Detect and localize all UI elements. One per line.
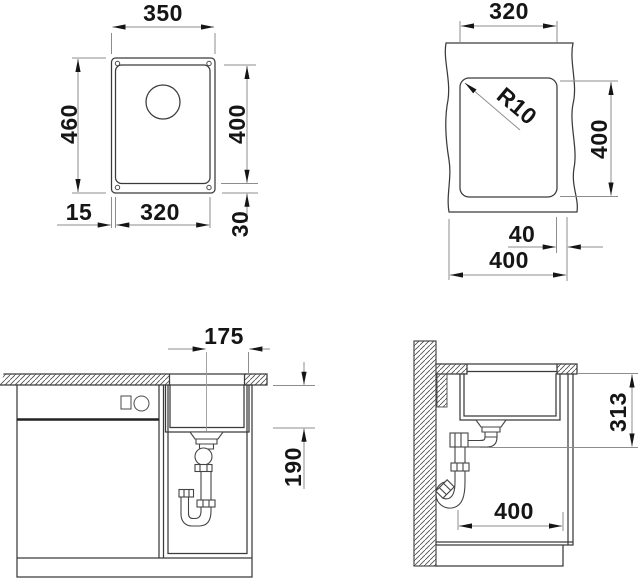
worktop-hatch-right	[245, 374, 267, 385]
dimension-drain-height: 313	[480, 374, 638, 448]
worktop-side-hatch-left	[436, 364, 467, 374]
dishwasher-dial	[134, 396, 149, 411]
dim-320-label: 320	[140, 199, 180, 225]
dimension-cutout-depth: 400	[560, 81, 618, 197]
sink-bowl-rim	[116, 65, 211, 184]
mounting-hole	[115, 185, 119, 189]
dim-40-label: 40	[509, 221, 536, 247]
wall-mounting-rail	[437, 374, 447, 407]
dimension-cabinet-width: 400	[449, 219, 566, 280]
dim-175-label: 175	[204, 323, 244, 349]
cutout-view: R10 320 400 40 400	[445, 0, 618, 281]
sink-bowl-front	[166, 385, 250, 432]
dim-320-cutout-label: 320	[489, 0, 529, 24]
top-view: 350 460 400 15 320 30	[56, 0, 258, 237]
wall-section	[414, 341, 436, 566]
dimension-center-offset: 175	[168, 323, 270, 374]
dishwasher-button	[121, 396, 131, 409]
cabinet-outline	[17, 385, 252, 577]
dim-460-label: 460	[56, 104, 82, 144]
dimension-bowl-depth: 400	[221, 65, 258, 184]
dim-400-cutout-label: 400	[586, 119, 612, 159]
trap-assembly-side	[436, 420, 506, 508]
dim-313-label: 313	[605, 392, 631, 432]
dimension-overall-depth: 460	[56, 58, 106, 193]
dim-15-label: 15	[66, 199, 93, 225]
front-view: 175 190	[0, 323, 315, 577]
mounting-hole	[207, 185, 211, 189]
drain-hole	[146, 85, 180, 119]
worktop-side-hatch-right	[557, 364, 577, 374]
dim-r10-label: R10	[492, 82, 542, 130]
dimension-rim-bottom: 30	[222, 193, 258, 237]
dim-350-label: 350	[143, 0, 183, 26]
dim-400-depth-label: 400	[494, 498, 534, 524]
sink-technical-drawing: 350 460 400 15 320 30	[0, 0, 640, 584]
dimension-rim-left: 15	[57, 197, 116, 228]
dim-400-total-label: 400	[489, 247, 529, 273]
worktop-hatch-left	[0, 374, 169, 385]
trap-assembly-front	[179, 432, 223, 526]
dimension-cutout-width: 320	[460, 0, 557, 42]
drawing-svg: 350 460 400 15 320 30	[0, 0, 640, 584]
dimension-overall-width: 350	[112, 0, 216, 54]
radius-callout: R10	[465, 82, 542, 130]
side-view: 313 400	[414, 341, 638, 566]
mounting-hole	[115, 61, 119, 65]
mounting-hole	[207, 61, 211, 65]
dimension-bowl-height: 190	[273, 362, 315, 489]
dim-30-label: 30	[227, 211, 253, 238]
sink-bowl-side	[460, 374, 560, 420]
dimension-cabinet-depth: 400	[458, 498, 563, 531]
dimension-bowl-width: 320	[116, 197, 210, 228]
dim-190-label: 190	[280, 447, 306, 487]
sink-outer-edge	[112, 58, 216, 193]
dim-400-label: 400	[224, 104, 250, 144]
